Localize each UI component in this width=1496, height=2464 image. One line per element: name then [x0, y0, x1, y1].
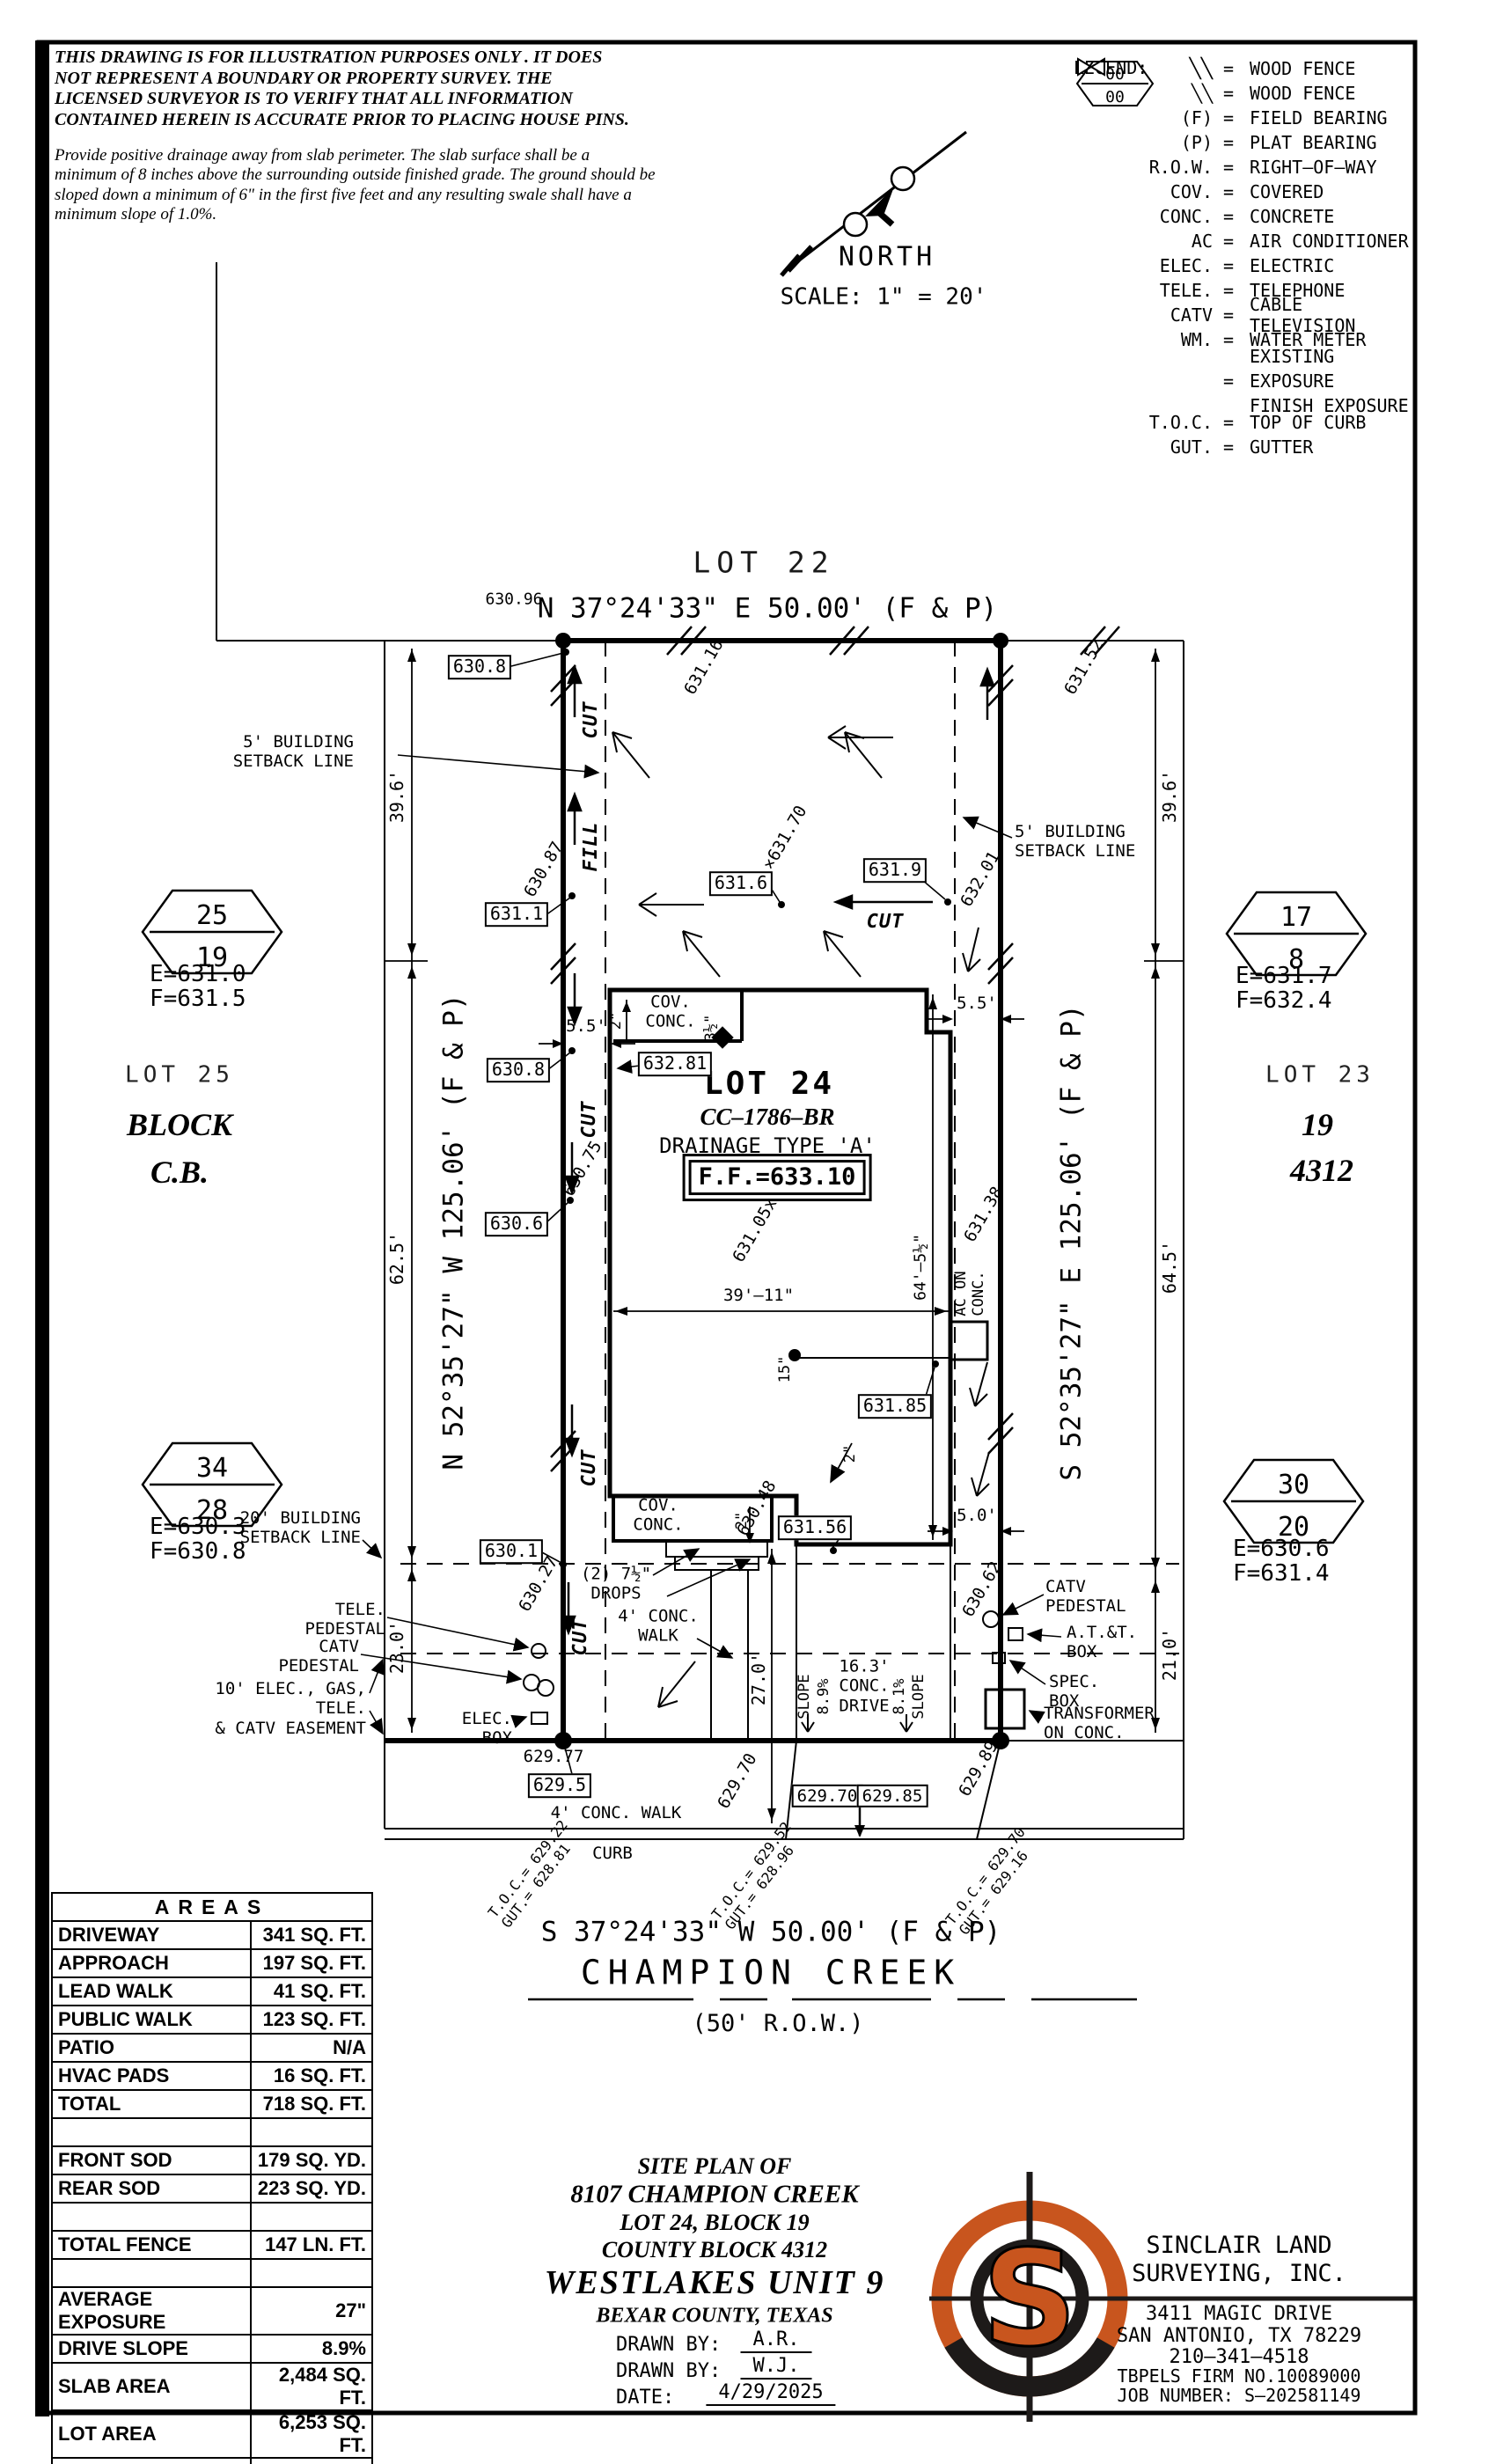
legend-def: AIR CONDITIONER	[1250, 231, 1419, 252]
lot23-label: LOT 23	[1265, 1062, 1375, 1089]
legend-symbol: CATV	[1075, 304, 1223, 326]
company-addr-1: 3411 MAGIC DRIVE	[1146, 2303, 1332, 2326]
cut-label-3: CUT	[578, 1449, 601, 1487]
areas-row-label: PUBLIC WALK	[52, 2006, 251, 2034]
areas-row-label: APPROACH	[52, 1949, 251, 1977]
street-row: (50' R.O.W.)	[692, 2010, 863, 2038]
legend-equals: =	[1223, 83, 1250, 104]
spot-631-9: 631.9	[863, 858, 927, 883]
title-line-2: 8107 CHAMPION CREEK	[570, 2181, 858, 2210]
areas-row-label: TOTAL	[52, 2090, 251, 2118]
areas-row-value: N/A	[251, 2034, 372, 2062]
spot-630-96: 630.96	[485, 590, 542, 608]
legend-def: RIGHT–OF–WAY	[1250, 157, 1419, 178]
areas-row-value: 6,253 SQ. FT.	[251, 2410, 372, 2458]
title-line-3: LOT 24, BLOCK 19	[620, 2210, 809, 2236]
att-box-icon	[1008, 1628, 1023, 1640]
dim-5-5-left: 5.5'	[566, 1016, 606, 1036]
legend-symbol: TELE.	[1075, 280, 1223, 301]
curb-label: CURB	[592, 1844, 633, 1863]
easement-label: 10' ELEC., GAS, TELE. & CATV EASEMENT	[155, 1679, 366, 1738]
disclaimer-primary: THIS DRAWING IS FOR ILLUSTRATION PURPOSE…	[55, 48, 715, 130]
elec-box-icon	[532, 1712, 547, 1724]
tele-pedestal-label: TELE. PEDESTAL	[262, 1600, 385, 1639]
dim-23-0: 23.0'	[387, 1621, 408, 1674]
table-row: REAR SOD 223 SQ. YD.	[52, 2174, 372, 2203]
company-addr-2: SAN ANTONIO, TX 78229	[1117, 2325, 1361, 2348]
block19-label: 19	[1302, 1106, 1333, 1143]
dim-21-0: 21.0'	[1160, 1628, 1181, 1681]
site-plan-sheet: S	[0, 0, 1496, 2464]
svg-text:30: 30	[1278, 1470, 1309, 1500]
dim-5-5-right: 5.5'	[957, 994, 997, 1013]
svg-text:00: 00	[1105, 88, 1125, 106]
table-row: TOTAL 718 SQ. FT.	[52, 2090, 372, 2118]
legend: LEGEND: ╲╲ = WOOD FENCE ╲╲ = WOOD FENCE …	[1075, 56, 1419, 459]
fill-label: FILL	[580, 822, 603, 872]
logo-s-letter: S	[982, 2223, 1077, 2376]
table-row: LEAD WALK 41 SQ. FT.	[52, 1977, 372, 2006]
date-value: 4/29/2025	[706, 2381, 835, 2406]
legend-equals: =	[1223, 181, 1250, 202]
table-row	[52, 2118, 372, 2146]
table-row: PATIO N/A	[52, 2034, 372, 2062]
spot-630-8a: 630.8	[448, 655, 511, 679]
public-walk-label: 4' CONC. WALK	[551, 1803, 682, 1822]
legend-equals: =	[1223, 157, 1250, 178]
wm-label: WM.	[1181, 329, 1213, 350]
svg-text:25: 25	[196, 900, 228, 931]
tele-pedestal-icon	[532, 1644, 546, 1658]
company-job: JOB NUMBER: S–202581149	[1118, 2386, 1361, 2407]
areas-row-label: HVAC PADS	[52, 2062, 251, 2090]
exposure-e-34: E=630.3	[150, 1514, 246, 1541]
areas-row-value: 41 SQ. FT.	[251, 1977, 372, 2006]
scale-label: SCALE: 1" = 20'	[781, 284, 987, 312]
table-row: DRIVEWAY 341 SQ. FT.	[52, 1921, 372, 1949]
finished-floor-elevation: F.F.=633.10	[689, 1160, 866, 1195]
legend-equals: =	[1223, 304, 1250, 326]
areas-row-value: 147 LN. FT.	[251, 2231, 372, 2259]
table-row	[52, 2203, 372, 2231]
legend-rows-2: T.O.C. = TOP OF CURB GUT. = GUTTER	[1075, 410, 1419, 459]
dim-5-0: 5.0'	[957, 1506, 997, 1525]
title-line-5: WESTLAKES UNIT 9	[545, 2263, 885, 2302]
legend-def: WOOD FENCE	[1250, 58, 1419, 79]
svg-text:17: 17	[1280, 902, 1312, 933]
legend-rows: ╲╲ = WOOD FENCE (F) = FIELD BEARING (P) …	[1075, 81, 1419, 327]
legend-def: CONCRETE	[1250, 206, 1419, 227]
dim-39-6-right: 39.6'	[1160, 770, 1181, 823]
dim-27-0: 27.0'	[749, 1653, 770, 1705]
areas-title: AREAS	[52, 1893, 372, 1921]
areas-row-value	[251, 2203, 372, 2231]
areas-row-label: LOT AREA	[52, 2410, 251, 2458]
legend-equals: =	[1223, 412, 1250, 433]
ac-pad	[950, 1322, 987, 1360]
areas-row-value: 718 SQ. FT.	[251, 2090, 372, 2118]
areas-rows: DRIVEWAY 341 SQ. FT. APPROACH 197 SQ. FT…	[52, 1921, 372, 2464]
dim-62-5: 62.5'	[387, 1232, 408, 1285]
legend-equals: =	[1223, 107, 1250, 128]
legend-symbol: AC	[1075, 231, 1223, 252]
att-box-label: A.T.&T. BOX	[1067, 1623, 1172, 1662]
company-name-2: SURVEYING, INC.	[1132, 2260, 1346, 2288]
legend-def: FIELD BEARING	[1250, 107, 1419, 128]
elec-box-label: ELEC. BOX	[398, 1709, 512, 1749]
dim-2in-porch: 2"	[607, 1012, 625, 1030]
table-row	[52, 2259, 372, 2287]
cb4312-label: 4312	[1290, 1152, 1353, 1189]
legend-equals: =	[1223, 206, 1250, 227]
svg-text:00: 00	[1105, 65, 1125, 84]
table-row: AVERAGE EXPOSURE 27"	[52, 2287, 372, 2335]
areas-row-label: AVERAGE EXPOSURE	[52, 2287, 251, 2335]
dim-2in-garage: 2"	[841, 1445, 859, 1463]
spot-632-81: 632.81	[638, 1052, 712, 1076]
areas-row-label	[52, 2458, 251, 2464]
table-row: APPROACH 197 SQ. FT.	[52, 1949, 372, 1977]
table-row: PUBLIC WALK 123 SQ. FT.	[52, 2006, 372, 2034]
catv-pedestal-label-right: CATV PEDESTAL	[1045, 1577, 1177, 1617]
slope-left-label: SLOPE	[796, 1674, 813, 1719]
setback5-right-label: 5' BUILDING SETBACK LINE	[1015, 822, 1173, 862]
dim-15in: 15"	[776, 1356, 794, 1383]
legend-def: GUTTER	[1250, 436, 1419, 458]
legend-def: WOOD FENCE	[1250, 83, 1419, 104]
wood-fence-marks	[551, 627, 1119, 1471]
table-row: TOTAL FENCE 147 LN. FT.	[52, 2231, 372, 2259]
legend-equals: =	[1223, 255, 1250, 276]
lead-walk-label: 4' CONC. WALK	[618, 1607, 699, 1646]
table-row	[52, 2458, 372, 2464]
exposure-f-25: F=631.5	[150, 986, 246, 1013]
cov-conc-rear: COV. CONC.	[633, 1496, 683, 1536]
dim-39-6-left: 39.6'	[387, 770, 408, 823]
areas-table: AREAS DRIVEWAY 341 SQ. FT. APPROACH 197 …	[51, 1892, 373, 2464]
areas-row-value: 197 SQ. FT.	[251, 1949, 372, 1977]
dim-64-5: 64.5'	[1160, 1241, 1181, 1294]
cut-label-4: CUT	[569, 1618, 592, 1656]
legend-equals: =	[1223, 370, 1250, 392]
areas-row-value: 27"	[251, 2287, 372, 2335]
dim-39-11: 39'–11"	[723, 1286, 794, 1305]
table-row: DRIVE SLOPE 8.9%	[52, 2335, 372, 2363]
spot-629-5: 629.5	[528, 1773, 591, 1798]
exposure-e-25: E=631.0	[150, 961, 246, 988]
drawn-by-value-2: W.J.	[741, 2355, 812, 2380]
company-name-1: SINCLAIR LAND	[1146, 2232, 1331, 2260]
areas-row-label: FRONT SOD	[52, 2146, 251, 2174]
areas-row-value: 16 SQ. FT.	[251, 2062, 372, 2090]
spot-631-1: 631.1	[485, 902, 548, 927]
title-line-6: BEXAR COUNTY, TEXAS	[596, 2305, 832, 2328]
legend-def: PLAT BEARING	[1250, 132, 1419, 153]
lot22-label: LOT 22	[693, 546, 834, 581]
street-name: CHAMPION CREEK	[581, 1954, 961, 1993]
legend-symbol: CONC.	[1075, 206, 1223, 227]
legend-equals: =	[1223, 132, 1250, 153]
exposure-f-30: F=631.4	[1233, 1560, 1330, 1588]
spot-629-77: 629.77	[524, 1747, 584, 1766]
legend-equals: =	[1223, 436, 1250, 458]
legend-symbol: T.O.C.	[1075, 412, 1223, 433]
bearing-south-line: S 37°24'33" W 50.00' (F & P)	[541, 1917, 1001, 1949]
legend-equals: =	[1223, 58, 1250, 79]
bearing-west-line-rot: N 52°35'27" W 125.06' (F & P)	[438, 994, 471, 1470]
areas-row-label: REAR SOD	[52, 2174, 251, 2203]
setback5-left-label: 5' BUILDING SETBACK LINE	[204, 732, 354, 772]
legend-equals: =	[1223, 329, 1250, 350]
areas-row-value: 341 SQ. FT.	[251, 1921, 372, 1949]
bearing-east-line-rot: S 52°35'27" E 125.06' (F & P)	[1056, 1004, 1089, 1480]
areas-row-value: 8.9%	[251, 2335, 372, 2363]
cut-label-2: CUT	[578, 1101, 601, 1139]
table-row: SLAB AREA 2,484 SQ. FT.	[52, 2363, 372, 2410]
table-row: HVAC PADS 16 SQ. FT.	[52, 2062, 372, 2090]
areas-row-value: 2,484 SQ. FT.	[251, 2363, 372, 2410]
porch-step-1	[666, 1541, 767, 1557]
areas-row-label: DRIVE SLOPE	[52, 2335, 251, 2363]
legend-def: ELECTRIC	[1250, 255, 1419, 276]
legend-equals: =	[1223, 280, 1250, 301]
cut-label-1: CUT	[580, 701, 603, 739]
areas-row-label: DRIVEWAY	[52, 1921, 251, 1949]
areas-row-value	[251, 2118, 372, 2146]
spot-629-85: 629.85	[857, 1785, 928, 1808]
date-label: DATE:	[616, 2387, 674, 2409]
title-line-1: SITE PLAN OF	[638, 2153, 792, 2180]
exposure-e-30: E=630.6	[1233, 1536, 1330, 1563]
lot25-label: LOT 25	[125, 1062, 234, 1089]
cov-conc-front: COV. CONC.	[645, 993, 695, 1032]
legend-def: EXISTING EXPOSURE	[1250, 346, 1334, 392]
slope-right-pct: 8.1%	[891, 1679, 908, 1715]
exposure-e-17: E=631.7	[1236, 963, 1332, 990]
legend-equals: =	[1223, 231, 1250, 252]
areas-row-label	[52, 2118, 251, 2146]
areas-row-value: 179 SQ. YD.	[251, 2146, 372, 2174]
legend-row-exposure: 00 00 = EXISTING EXPOSURE FINISH EXPOSUR…	[1075, 352, 1419, 410]
slope-left-pct: 8.9%	[815, 1679, 832, 1715]
areas-row-value: 223 SQ. YD.	[251, 2174, 372, 2203]
drawn-by-value-1: A.R.	[741, 2328, 812, 2353]
catv-pedestal-right-icon	[983, 1611, 999, 1627]
catv-pedestal-label-left: CATV PEDESTAL	[236, 1637, 359, 1676]
areas-row-label: PATIO	[52, 2034, 251, 2062]
exposure-hex-icon: 00 00	[1075, 56, 1155, 111]
legend-def: COVERED	[1250, 181, 1419, 202]
lot24-label: LOT 24	[704, 1066, 834, 1103]
drive-label: 16.3' CONC. DRIVE	[839, 1656, 889, 1715]
legend-symbol: GUT.	[1075, 436, 1223, 458]
areas-row-label: LEAD WALK	[52, 1977, 251, 2006]
transformer-icon	[986, 1690, 1024, 1728]
spot-leaders	[508, 653, 945, 1774]
legend-symbol: COV.	[1075, 181, 1223, 202]
areas-row-value: 123 SQ. FT.	[251, 2006, 372, 2034]
areas-row-value	[251, 2458, 372, 2464]
areas-row-label: TOTAL FENCE	[52, 2231, 251, 2259]
areas-row-label: SLAB AREA	[52, 2363, 251, 2410]
transformer-label: TRANSFORMER ON CONC.	[1044, 1704, 1220, 1743]
drainage-type: DRAINAGE TYPE 'A'	[659, 1133, 876, 1158]
svg-text:34: 34	[196, 1453, 228, 1484]
legend-symbol: R.O.W.	[1075, 157, 1223, 178]
plan-number: CC–1786–BR	[700, 1104, 834, 1132]
drops-label: (2) 7½" DROPS	[581, 1565, 651, 1604]
cb-label: C.B.	[150, 1154, 209, 1191]
legend-def: TOP OF CURB	[1250, 412, 1419, 433]
areas-row-label	[52, 2203, 251, 2231]
spot-629-70: 629.70	[792, 1785, 863, 1808]
slope-right-label: SLOPE	[910, 1674, 928, 1719]
ac-on-conc-label: AC ON CONC.	[952, 1271, 987, 1316]
cut-label-right: CUT	[867, 911, 905, 934]
dim-64-5-half: 64'–5½"	[911, 1234, 929, 1301]
title-line-4: COUNTY BLOCK 4312	[602, 2237, 827, 2263]
spot-631-6: 631.6	[709, 871, 773, 896]
drawn-by-label-2: DRAWN BY:	[616, 2360, 721, 2383]
north-label: NORTH	[839, 241, 935, 272]
legend-symbol: ELEC.	[1075, 255, 1223, 276]
spot-630-6: 630.6	[485, 1212, 548, 1236]
bearing-north-line: N 37°24'33" E 50.00' (F & P)	[538, 593, 998, 626]
utility-symbols	[524, 1611, 1024, 1728]
exposure-f-34: F=630.8	[150, 1538, 246, 1566]
disclaimer-secondary: Provide positive drainage away from slab…	[55, 146, 732, 225]
block-label: BLOCK	[127, 1106, 232, 1143]
areas-row-label	[52, 2259, 251, 2287]
spot-630-1: 630.1	[480, 1539, 543, 1564]
areas-row-value	[251, 2259, 372, 2287]
spot-631-85: 631.85	[858, 1394, 932, 1419]
spot-631-56: 631.56	[778, 1515, 852, 1540]
spot-630-8b: 630.8	[487, 1058, 550, 1082]
dim-3half: 3½"	[702, 1015, 720, 1042]
table-row: LOT AREA 6,253 SQ. FT.	[52, 2410, 372, 2458]
legend-symbol: (P)	[1075, 132, 1223, 153]
table-row: FRONT SOD 179 SQ. YD.	[52, 2146, 372, 2174]
exposure-f-17: F=632.4	[1236, 987, 1332, 1015]
drawn-by-label-1: DRAWN BY:	[616, 2334, 721, 2357]
